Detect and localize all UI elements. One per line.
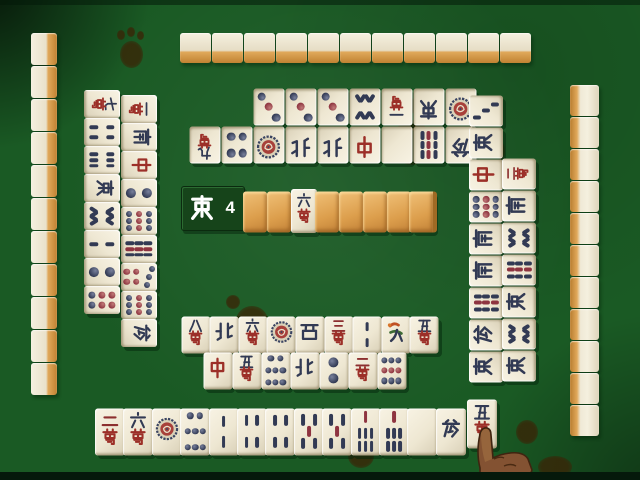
tile-back: [308, 33, 339, 63]
felt-stain: [127, 27, 135, 37]
tile-back: [339, 191, 363, 232]
tile-N: [210, 316, 239, 353]
tile-9s: [502, 254, 536, 285]
tile-7m: [84, 90, 120, 118]
tile-E: [502, 286, 536, 317]
tile-back: [570, 245, 599, 276]
tile-back: [276, 33, 307, 63]
tile-5m: [232, 352, 261, 389]
tile-1p: [267, 316, 296, 353]
tile-4s[interactable]: [237, 408, 267, 455]
felt-stain: [120, 41, 143, 68]
tile-2s: [353, 316, 382, 353]
tile-8s: [502, 222, 536, 253]
tile-back: [212, 33, 243, 63]
tile-3p: [285, 88, 316, 125]
tile-back: [570, 341, 599, 372]
tile-1s: [381, 316, 410, 353]
tile-back: [387, 191, 411, 232]
tile-back: [570, 149, 599, 180]
tile-8p[interactable]: [180, 408, 210, 455]
tile-9p: [121, 291, 157, 319]
tile-E: [413, 88, 444, 125]
tile-5s[interactable]: [294, 408, 324, 455]
tile-9p: [121, 207, 157, 235]
round-wind-glyph: [189, 195, 215, 227]
tile-back: [363, 191, 387, 232]
tile-4s: [84, 118, 120, 146]
tile-3s: [469, 95, 503, 126]
tile-2m: [348, 352, 377, 389]
tile-9p: [469, 191, 503, 222]
tile-3p: [253, 88, 284, 125]
tile-C: [203, 352, 232, 389]
tile-back: [570, 309, 599, 340]
tile-E: [84, 174, 120, 202]
tile-back: [372, 33, 403, 63]
tile-5s[interactable]: [322, 408, 352, 455]
tile-7s[interactable]: [379, 408, 409, 455]
tile-1p[interactable]: [152, 408, 182, 455]
tile-back: [500, 33, 531, 63]
tile-back: [468, 33, 499, 63]
tile-3m: [324, 316, 353, 353]
tile-back: [570, 117, 599, 148]
tile-back: [570, 373, 599, 404]
tile-2s[interactable]: [209, 408, 239, 455]
tile-S: [502, 190, 536, 221]
tile-6p: [84, 286, 120, 314]
tile-6m: [238, 316, 267, 353]
tile-2s: [84, 230, 120, 258]
tile-back: [570, 181, 599, 212]
tile-1p: [253, 126, 284, 163]
tile-N: [285, 126, 316, 163]
tile-back: [31, 66, 57, 98]
tile-back: [570, 405, 599, 436]
tile-6m: [291, 189, 317, 233]
tile-back: [180, 33, 211, 63]
tile-9m: [189, 126, 220, 163]
tile-C: [121, 151, 157, 179]
tile-2p: [84, 258, 120, 286]
tile-9s: [469, 287, 503, 318]
felt-stain: [226, 295, 240, 309]
tile-W: [295, 316, 324, 353]
felt-stain: [137, 31, 144, 40]
tile-N: [317, 126, 348, 163]
tile-white-dragon-blank[interactable]: [407, 408, 437, 455]
tile-back: [244, 33, 275, 63]
tile-2m: [502, 158, 536, 189]
tile-8s: [502, 318, 536, 349]
tile-2m[interactable]: [95, 408, 125, 455]
tile-back: [409, 191, 437, 232]
tile-back: [243, 191, 267, 232]
tile-S: [469, 223, 503, 254]
tile-S: [469, 255, 503, 286]
tile-C: [349, 126, 380, 163]
mahjong-table: 4: [0, 0, 640, 480]
tile-3p: [317, 88, 348, 125]
tile-back: [570, 85, 599, 116]
tile-white-dragon-blank: [381, 126, 412, 163]
tile-back: [31, 363, 57, 395]
felt-stain: [117, 30, 125, 40]
tile-back: [315, 191, 339, 232]
tile-9s: [413, 126, 444, 163]
round-number: 4: [226, 198, 235, 218]
table-edge-bottom: [0, 472, 640, 480]
tile-8s: [84, 202, 120, 230]
tile-6s: [84, 146, 120, 174]
tile-C: [469, 159, 503, 190]
tile-back: [267, 191, 291, 232]
tile-back: [436, 33, 467, 63]
tile-S: [121, 123, 157, 151]
tile-back: [31, 165, 57, 197]
tile-back: [404, 33, 435, 63]
tile-E: [469, 351, 503, 382]
tile-back: [31, 231, 57, 263]
tile-back: [31, 297, 57, 329]
tile-back: [31, 99, 57, 131]
tile-E: [469, 127, 503, 158]
tile-9s: [121, 235, 157, 263]
tile-1m: [121, 95, 157, 123]
tile-7p: [121, 263, 157, 291]
tile-9p: [377, 352, 406, 389]
tile-back: [31, 264, 57, 296]
tile-E: [502, 350, 536, 381]
tile-back: [570, 277, 599, 308]
tile-8s: [349, 88, 380, 125]
tile-7s[interactable]: [351, 408, 381, 455]
tile-1m: [381, 88, 412, 125]
tile-4p: [221, 126, 252, 163]
tile-back: [570, 213, 599, 244]
tile-back: [31, 198, 57, 230]
round-indicator: 4: [181, 186, 245, 231]
tile-N: [290, 352, 319, 389]
tile-8m: [181, 316, 210, 353]
tile-F: [121, 319, 157, 347]
tile-back: [31, 33, 57, 65]
tile-F: [469, 319, 503, 350]
tile-5m: [410, 316, 439, 353]
tile-back: [31, 330, 57, 362]
tile-2p: [319, 352, 348, 389]
tile-6m[interactable]: [123, 408, 153, 455]
table-edge-top: [0, 0, 640, 5]
tile-2p: [121, 179, 157, 207]
tile-4s[interactable]: [265, 408, 295, 455]
tile-back: [31, 132, 57, 164]
tile-8p: [261, 352, 290, 389]
tile-back: [340, 33, 371, 63]
